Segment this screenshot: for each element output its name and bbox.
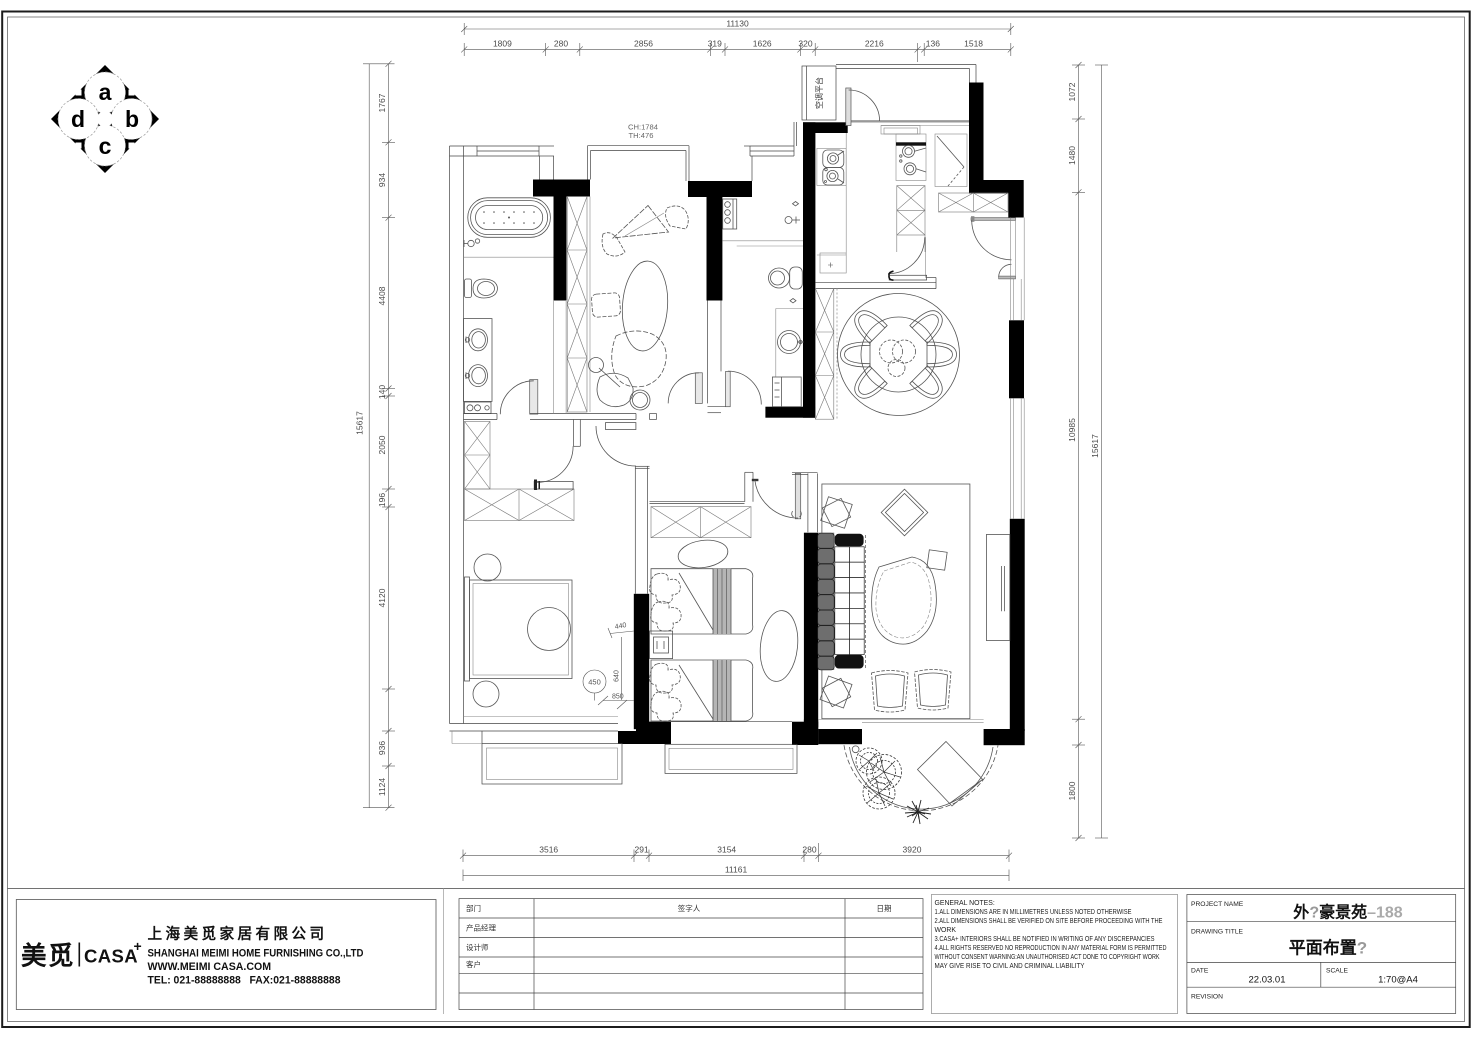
svg-text:MAY GIVE RISE TO CIVIL AND CRI: MAY GIVE RISE TO CIVIL AND CRIMINAL LIAB… [935, 963, 1085, 970]
svg-text:640: 640 [614, 670, 621, 682]
svg-text:产品经理: 产品经理 [466, 923, 496, 933]
svg-text:2.ALL DIMENSIONS SHALL BE VERI: 2.ALL DIMENSIONS SHALL BE VERIFIED ON SI… [935, 918, 1163, 925]
svg-text:SHANGHAI MEIMI HOME FURNISHING: SHANGHAI MEIMI HOME FURNISHING CO.,LTD [148, 948, 364, 960]
svg-text:1072: 1072 [1067, 82, 1077, 101]
svg-text:REVISION: REVISION [1191, 994, 1223, 1001]
svg-text:1124: 1124 [377, 778, 387, 797]
svg-text:140: 140 [377, 385, 387, 399]
svg-text:22.03.01: 22.03.01 [1249, 975, 1286, 986]
svg-text:日期: 日期 [877, 904, 892, 913]
svg-text:1:70@A4: 1:70@A4 [1378, 975, 1418, 986]
svg-text:空调平台: 空调平台 [814, 77, 824, 109]
svg-text:WWW.MEIMI CASA.COM: WWW.MEIMI CASA.COM [148, 961, 272, 973]
svg-text:DATE: DATE [1191, 968, 1209, 975]
svg-text:上海美觅家居有限公司: 上海美觅家居有限公司 [148, 925, 328, 943]
svg-text:15617: 15617 [1090, 434, 1100, 458]
svg-text:4.ALL RIGHTS RESERVED NO REPRO: 4.ALL RIGHTS RESERVED NO REPRODUCTION IN… [935, 945, 1167, 952]
svg-text:11161: 11161 [725, 864, 748, 874]
svg-text:2050: 2050 [377, 435, 387, 454]
svg-text:WITHOUT CONSENT WARNING:AN UNA: WITHOUT CONSENT WARNING:AN UNAUTHORISED … [935, 954, 1160, 961]
svg-text:1626: 1626 [753, 39, 772, 49]
svg-text:850: 850 [612, 694, 624, 701]
svg-text:2216: 2216 [865, 39, 884, 49]
svg-text:320: 320 [798, 39, 812, 49]
svg-text:3516: 3516 [539, 845, 558, 855]
svg-text:TEL: 021-88888888 FAX:021-88: TEL: 021-88888888 FAX:021-88888888 [148, 975, 341, 987]
svg-text:196: 196 [377, 493, 387, 507]
svg-text:936: 936 [377, 741, 387, 755]
svg-text:1809: 1809 [493, 39, 512, 49]
svg-text:319: 319 [708, 39, 722, 49]
svg-text:TH:476: TH:476 [629, 131, 654, 140]
svg-text:15617: 15617 [355, 411, 365, 435]
svg-text:平面布置?: 平面布置? [1289, 938, 1367, 958]
svg-text:4408: 4408 [377, 286, 387, 305]
svg-text:280: 280 [802, 845, 816, 855]
svg-text:PROJECT NAME: PROJECT NAME [1191, 901, 1244, 908]
svg-text:客户: 客户 [466, 959, 481, 969]
svg-text:d: d [71, 106, 85, 132]
svg-text:4120: 4120 [377, 588, 387, 607]
svg-text:b: b [125, 106, 139, 132]
svg-text:3154: 3154 [717, 845, 736, 855]
svg-text:设计师: 设计师 [466, 942, 489, 952]
svg-text:SCALE: SCALE [1326, 968, 1348, 975]
svg-text:1800: 1800 [1067, 781, 1077, 800]
svg-text:280: 280 [554, 39, 568, 49]
svg-text:291: 291 [635, 845, 649, 855]
svg-text:1.ALL DIMENSIONS ARE IN MILLIM: 1.ALL DIMENSIONS ARE IN MILLIMETRES UNLE… [935, 909, 1132, 916]
svg-text:450: 450 [588, 678, 601, 687]
svg-text:3920: 3920 [903, 845, 922, 855]
svg-text:136: 136 [926, 39, 940, 49]
svg-text:11130: 11130 [726, 19, 749, 29]
svg-text:2856: 2856 [634, 39, 653, 49]
svg-text:10985: 10985 [1067, 418, 1077, 442]
svg-text:a: a [99, 79, 112, 105]
svg-text:DRAWING TITLE: DRAWING TITLE [1191, 929, 1244, 936]
svg-text:GENERAL NOTES:: GENERAL NOTES: [935, 900, 995, 907]
svg-text:美觅: 美觅 [21, 942, 75, 971]
svg-text:部门: 部门 [466, 903, 481, 913]
svg-text:WORK: WORK [935, 927, 957, 934]
svg-text:签字人: 签字人 [678, 903, 701, 913]
svg-text:+: + [134, 938, 142, 954]
svg-text:c: c [99, 133, 112, 159]
svg-text:934: 934 [377, 173, 387, 187]
svg-text:外?豪景苑–188: 外?豪景苑–188 [1292, 903, 1403, 922]
svg-text:1480: 1480 [1067, 146, 1077, 165]
svg-text:1767: 1767 [377, 93, 387, 112]
svg-text:1518: 1518 [964, 39, 983, 49]
svg-text:3.CASA+ INTERIORS SHALL BE NOT: 3.CASA+ INTERIORS SHALL BE NOTIFIED IN W… [935, 936, 1155, 943]
svg-text:CASA: CASA [84, 946, 138, 967]
